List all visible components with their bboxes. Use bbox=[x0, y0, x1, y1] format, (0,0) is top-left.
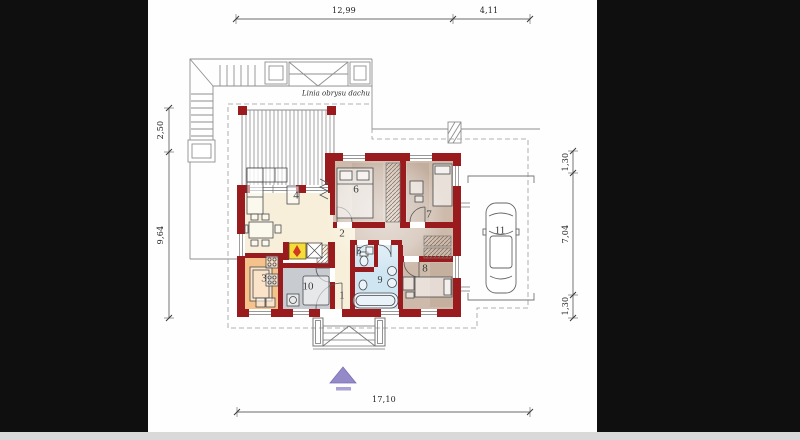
north-arrow bbox=[330, 367, 356, 391]
dim-left-1: 2,50 bbox=[157, 121, 165, 140]
roof-skylight-1 bbox=[265, 62, 287, 84]
dim-right-2: 7,04 bbox=[562, 225, 570, 244]
room-label-9: 9 bbox=[378, 276, 383, 286]
room-label-7: 7 bbox=[426, 210, 432, 221]
chimney bbox=[448, 122, 461, 143]
room-label-1: 1 bbox=[339, 291, 345, 302]
roof-outline-label: Linia obrysu dachu bbox=[302, 91, 370, 98]
dim-top-1: 12,99 bbox=[332, 7, 356, 15]
pergola-post-right bbox=[327, 106, 336, 115]
toilet-bath bbox=[359, 280, 367, 290]
room-label-10: 10 bbox=[303, 282, 314, 293]
dim-top-2: 4,11 bbox=[480, 7, 499, 15]
room-label-3: 3 bbox=[261, 274, 267, 285]
fireplace-block bbox=[289, 243, 322, 259]
toilet-wc bbox=[360, 256, 368, 266]
room-label-4: 4 bbox=[293, 191, 299, 202]
roof-skylight-2 bbox=[350, 62, 370, 84]
dim-right-3: 1,30 bbox=[562, 297, 570, 316]
roof-truss-panel bbox=[289, 62, 348, 86]
room-label-2: 2 bbox=[339, 229, 345, 240]
desk-room7 bbox=[410, 181, 423, 194]
wardrobe-nook-1 bbox=[424, 236, 451, 246]
bottom-strip bbox=[0, 432, 800, 440]
roof-skylight-3 bbox=[188, 140, 215, 162]
wardrobe-strip bbox=[386, 163, 400, 222]
room-label-8: 8 bbox=[422, 264, 428, 275]
entrance-porch bbox=[313, 318, 385, 349]
dim-right-1: 1,30 bbox=[562, 153, 570, 172]
floor-plan-drawing bbox=[0, 0, 800, 440]
desk-room8 bbox=[403, 277, 414, 290]
dim-bottom-1: 17,10 bbox=[372, 396, 396, 404]
floor-plan-canvas: 12,99 4,11 2,50 9,64 1,30 7,04 1,30 17,1… bbox=[0, 0, 800, 440]
washbasin-1 bbox=[388, 267, 397, 276]
washbasin-2 bbox=[388, 279, 397, 288]
room-label-11: 11 bbox=[495, 226, 506, 237]
dim-left-2: 9,64 bbox=[157, 226, 165, 245]
room-label-6: 6 bbox=[353, 185, 359, 196]
washer-wc bbox=[366, 247, 373, 254]
carport bbox=[461, 176, 534, 300]
car-top-view bbox=[483, 203, 519, 293]
bed-room8 bbox=[403, 277, 452, 298]
wardrobe-nook-2 bbox=[424, 248, 451, 258]
pergola-post-left bbox=[238, 106, 247, 115]
room-label-5: 5 bbox=[357, 247, 362, 257]
